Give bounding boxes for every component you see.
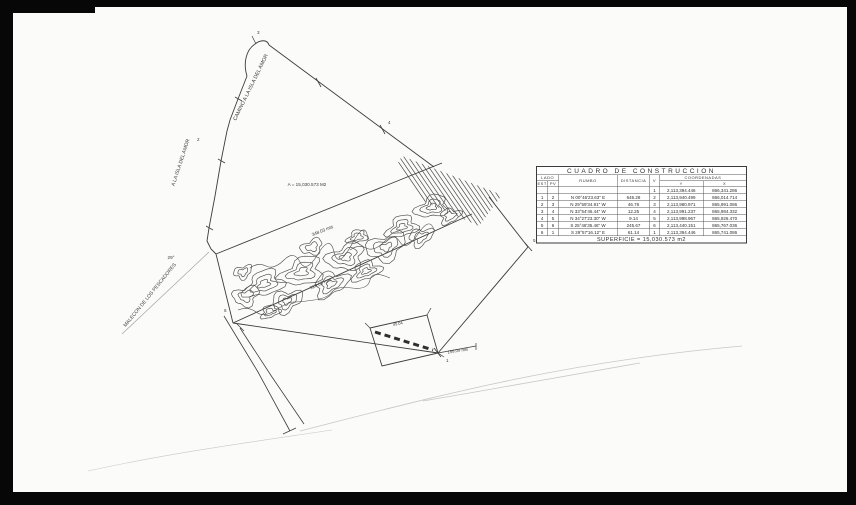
scan-border-top <box>0 0 856 7</box>
table-cell: N 33°54'46.44" W <box>559 208 618 215</box>
construction-rows: 12,113,394.446866,341.28612N 00°46'23.63… <box>537 187 747 236</box>
table-cell: 865,741.086 <box>703 229 747 236</box>
contour-lines <box>231 194 462 319</box>
table-cell: 2 <box>537 201 548 208</box>
col-rumbo: RUMBO <box>559 175 618 187</box>
table-cell: 61.14 <box>618 229 650 236</box>
table-cell: 3 <box>537 208 548 215</box>
table-cell: 1 <box>548 229 559 236</box>
table-cell: N 34°27'23.30" W <box>559 215 618 222</box>
table-row: 12,113,394.446866,341.286 <box>537 187 747 194</box>
table-cell: 2 <box>650 194 660 201</box>
table-cell: 5 <box>548 215 559 222</box>
faint-shoreline-arcs <box>88 346 742 471</box>
waterfront-line <box>122 252 209 334</box>
edge-length-band-top: 348.03 mts <box>311 224 335 237</box>
table-cell <box>537 187 548 194</box>
table-cell: 6 <box>548 222 559 229</box>
table-cell: 1 <box>650 187 660 194</box>
table-row: 56S 25°46'35.46" W245.6762,113,440.15186… <box>537 222 747 229</box>
table-cell: 4 <box>537 215 548 222</box>
dashed-diagonal <box>375 332 433 350</box>
road-lines <box>224 316 304 434</box>
table-cell: 865,991.086 <box>703 201 747 208</box>
table-row: 45N 34°27'23.30" W9.1452,113,998.967865,… <box>537 215 747 222</box>
scan-border-corner-tab <box>0 0 95 13</box>
vertex-number: 6 <box>224 308 227 313</box>
table-cell: 5 <box>650 215 660 222</box>
table-cell: N 00°46'23.63" E <box>559 194 618 201</box>
table-cell: 866,014.714 <box>703 194 747 201</box>
vertex-number: 2 <box>197 137 200 142</box>
inner-parcel-square <box>365 308 476 366</box>
table-cell: 865,767.036 <box>703 222 747 229</box>
cuadro-de-construccion: CUADRO DE CONSTRUCCION LADO RUMBO DISTAN… <box>536 166 747 244</box>
table-cell: 2,113,998.967 <box>660 215 704 222</box>
table-cell: 865,984.332 <box>703 208 747 215</box>
table-cell: 866,341.286 <box>703 187 747 194</box>
road-label-lower: A LA ISLA DEL AMOR <box>171 138 192 187</box>
area-note: A = 15,030.573 M2 <box>288 182 327 187</box>
scanned-survey-sheet: CAMINO A LA ISLA DEL AMOR A LA ISLA DEL … <box>0 0 856 505</box>
table-cell: 646.28 <box>618 194 650 201</box>
table-row: 34N 33°54'46.44" W12.2542,113,991.237865… <box>537 208 747 215</box>
scan-border-bottom <box>0 492 856 505</box>
scan-border-left <box>0 0 13 505</box>
col-distancia: DISTANCIA <box>618 175 650 187</box>
survey-drawing: CAMINO A LA ISLA DEL AMOR A LA ISLA DEL … <box>0 0 856 505</box>
table-cell: 3 <box>650 201 660 208</box>
table-cell: 12.25 <box>618 208 650 215</box>
table-cell: 4 <box>650 208 660 215</box>
table-cell: 865,926.470 <box>703 215 747 222</box>
table-cell: N 29°59'34.91" W <box>559 201 618 208</box>
road-label-upper: CAMINO A LA ISLA DEL AMOR <box>232 53 270 122</box>
table-cell <box>548 187 559 194</box>
table-cell: 2 <box>548 194 559 201</box>
table-cell: S 25°46'35.46" W <box>559 222 618 229</box>
edge-length-corner: 158.04 mts <box>447 347 468 355</box>
table-cell: 4 <box>548 208 559 215</box>
table-cell: 3 <box>548 201 559 208</box>
square-edge-length: 45.04 <box>392 320 404 327</box>
table-cell: 9.14 <box>618 215 650 222</box>
table-cell: 6 <box>537 229 548 236</box>
table-cell: 5 <box>537 222 548 229</box>
table-cell <box>559 187 618 194</box>
table-cell: 2,113,991.237 <box>660 208 704 215</box>
table-title: CUADRO DE CONSTRUCCION <box>537 167 747 175</box>
table-cell: 1 <box>650 229 660 236</box>
vertex-number: 1 <box>446 358 449 363</box>
table-row: 61S 29°57'16.12" E61.1412,113,394.446865… <box>537 229 747 236</box>
table-cell: S 29°57'16.12" E <box>559 229 618 236</box>
scan-border-right <box>847 0 856 505</box>
table-cell: 2,113,394.446 <box>660 187 704 194</box>
waterfront-label: MALECON DE LOS PESCADORES <box>123 262 179 329</box>
table-cell: 46.76 <box>618 201 650 208</box>
table-row: 12N 00°46'23.63" E646.2822,113,940.49986… <box>537 194 747 201</box>
table-cell: 2,113,940.499 <box>660 194 704 201</box>
angle-note: 29° <box>168 255 175 260</box>
table-cell: 245.67 <box>618 222 650 229</box>
table-cell <box>618 187 650 194</box>
col-est: EST <box>537 181 548 187</box>
vertex-number: 4 <box>388 120 391 125</box>
slope-hatching <box>382 138 540 257</box>
table-row: 23N 29°59'34.91" W46.7632,113,980.971865… <box>537 201 747 208</box>
table-cell: 6 <box>650 222 660 229</box>
table-cell: 2,113,394.446 <box>660 229 704 236</box>
col-v: V <box>650 175 660 187</box>
construction-table: CUADRO DE CONSTRUCCION LADO RUMBO DISTAN… <box>536 166 747 244</box>
superficie-note: SUPERFICIE = 15,030.573 m2 <box>537 236 747 243</box>
table-cell: 2,113,440.151 <box>660 222 704 229</box>
vertex-number: 3 <box>257 30 260 35</box>
table-cell: 1 <box>537 194 548 201</box>
station-ticks <box>206 78 532 357</box>
table-cell: 2,113,980.971 <box>660 201 704 208</box>
